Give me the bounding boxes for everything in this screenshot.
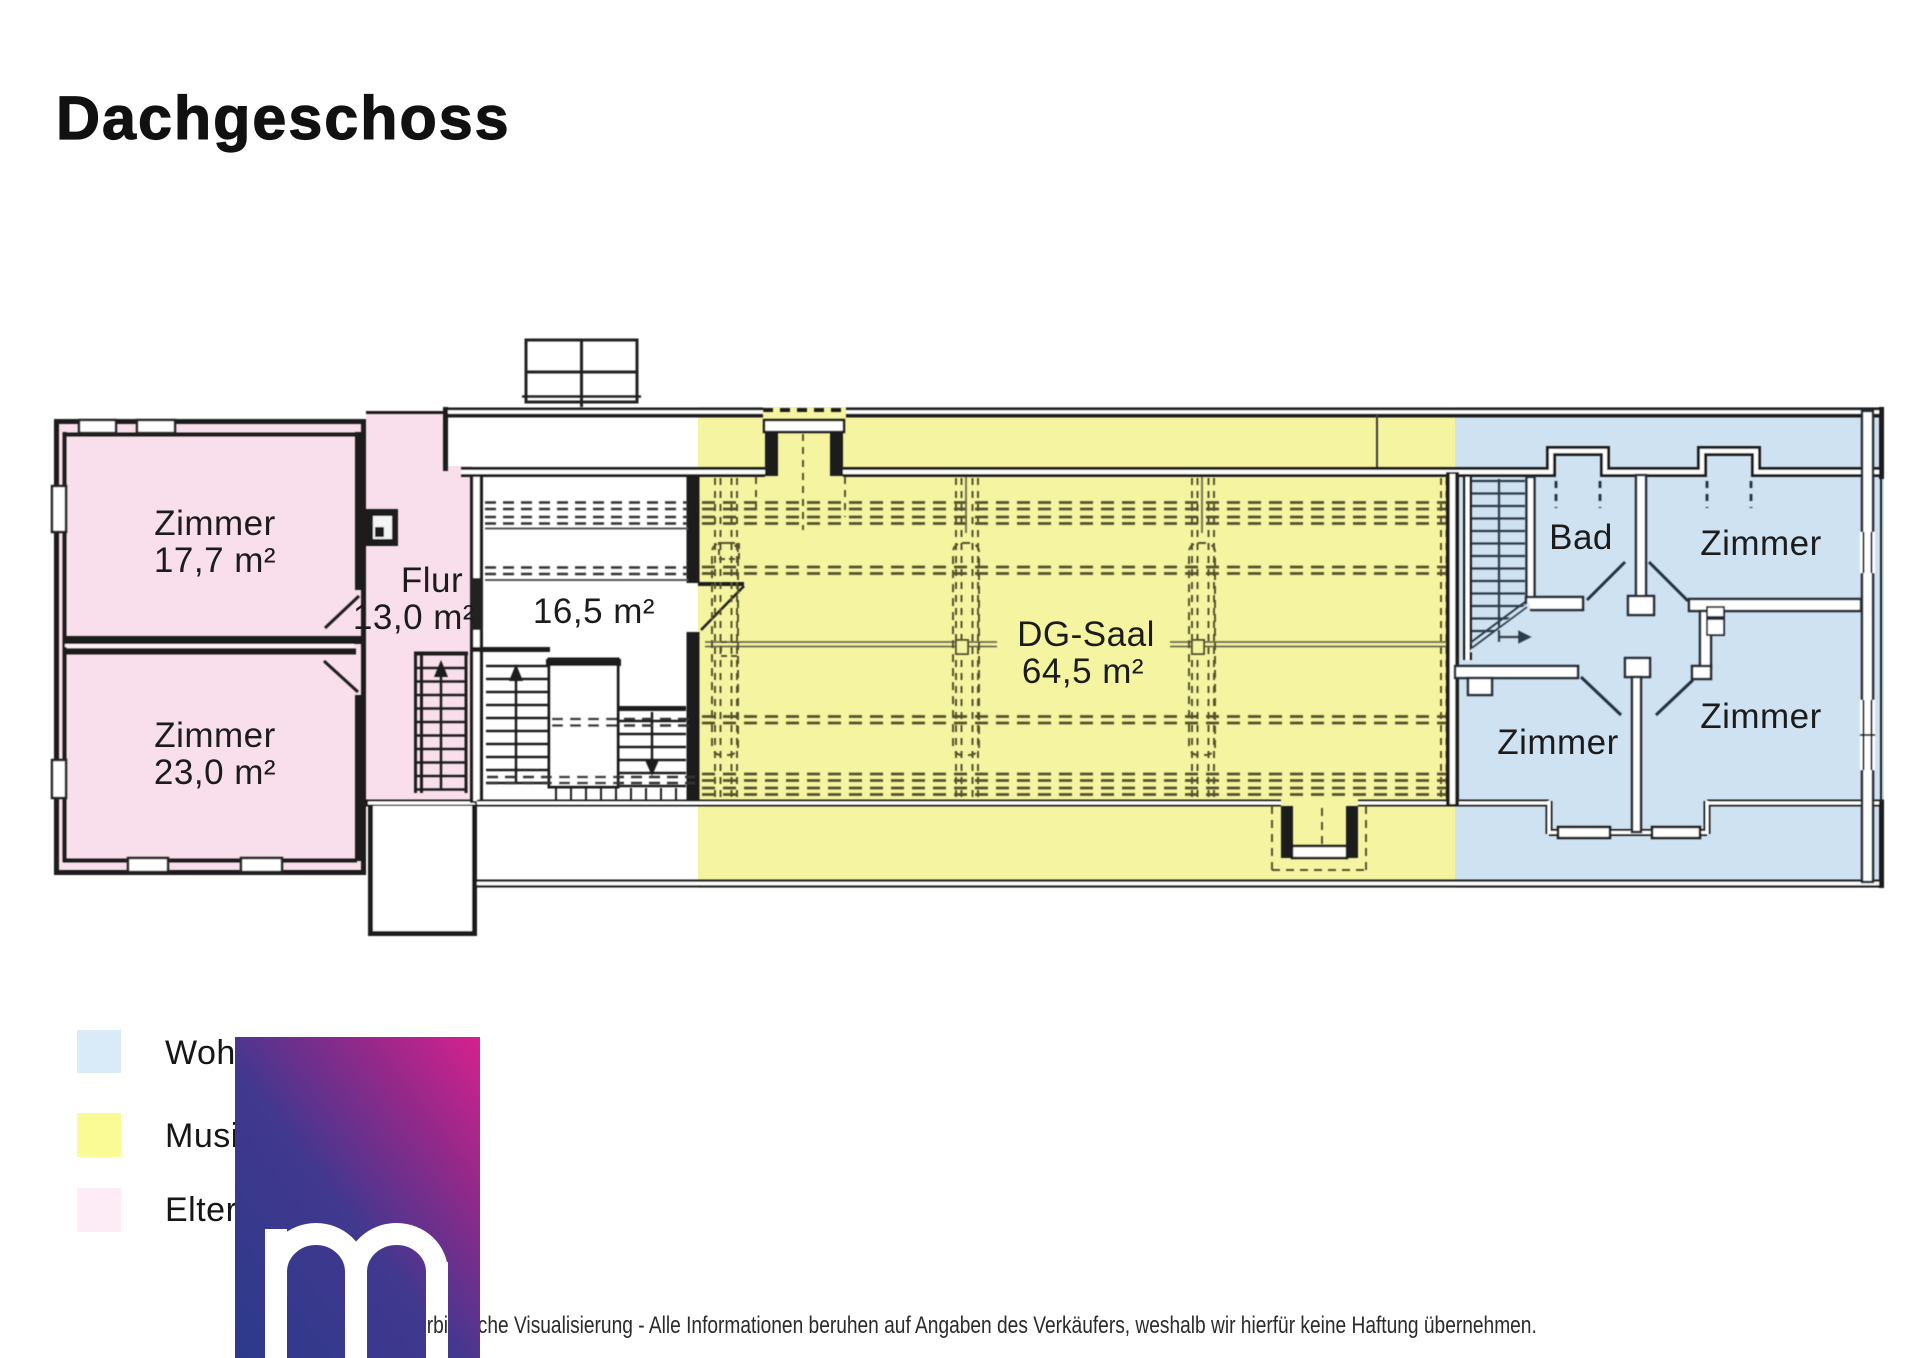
svg-text:Zimmer: Zimmer [1700,697,1822,736]
svg-text:Bad: Bad [1549,518,1613,557]
svg-text:Flur: Flur [401,561,463,600]
svg-text:Zimmer: Zimmer [154,504,276,543]
svg-text:Zimmer: Zimmer [1497,723,1619,762]
svg-text:Dachgeschoss: Dachgeschoss [56,84,511,152]
svg-text:Zimmer: Zimmer [154,716,276,755]
svg-text:Unverbindliche Visualisierung: Unverbindliche Visualisierung - Alle Inf… [382,1311,1537,1339]
svg-text:13,0 m²: 13,0 m² [353,598,475,637]
svg-text:Zimmer: Zimmer [1700,524,1822,563]
svg-text:16,5 m²: 16,5 m² [533,592,655,631]
svg-text:64,5 m²: 64,5 m² [1022,652,1144,691]
svg-text:17,7 m²: 17,7 m² [154,541,276,580]
svg-text:DG-Saal: DG-Saal [1017,615,1155,654]
svg-text:23,0 m²: 23,0 m² [154,753,276,792]
